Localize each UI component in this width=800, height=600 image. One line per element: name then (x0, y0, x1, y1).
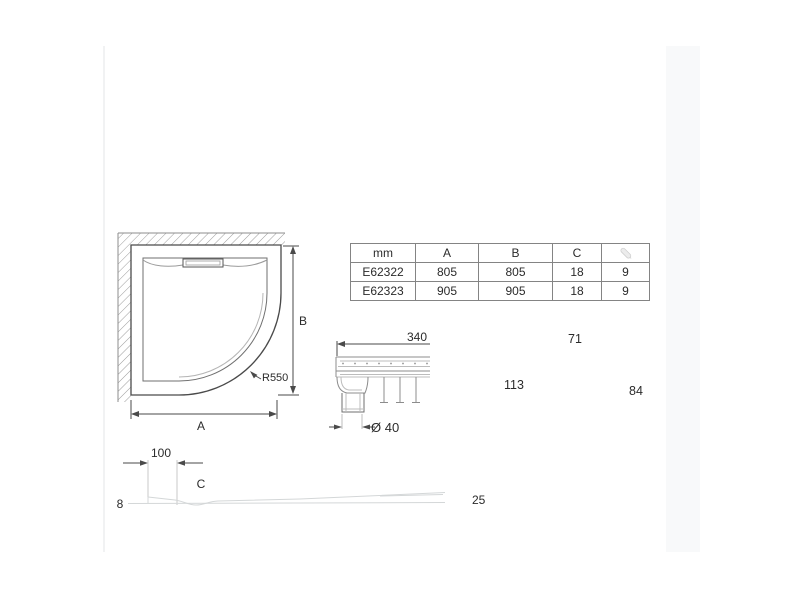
c-cell: 18 (553, 263, 602, 282)
wall-hatch-top (118, 233, 285, 245)
dimension-drain-diameter (329, 414, 375, 430)
model-cell: E62322 (351, 263, 416, 282)
c-cell: 18 (553, 282, 602, 301)
col-header-b: B (479, 244, 553, 263)
dim-label-340: 340 (407, 330, 427, 344)
dim-label-drain-diameter: Ø 40 (371, 420, 399, 435)
spec-table-row: E62322 805 805 18 9 (351, 263, 650, 282)
spec-table-row: E62323 905 905 18 9 (351, 282, 650, 301)
spec-table-header-row: mm A B C (351, 244, 650, 263)
tray-section-layers (336, 357, 430, 377)
dim-label-100: 100 (151, 446, 171, 460)
radius-callout (250, 371, 261, 379)
dim-label-c: C (197, 477, 206, 491)
dim-label-25: 25 (472, 493, 486, 507)
product-dimension-sheet: B A R550 34 (0, 0, 800, 600)
dim-label-r550: R550 (262, 372, 288, 384)
a-cell: 805 (416, 263, 479, 282)
drain-cover (183, 259, 223, 267)
col-header-c: C (553, 244, 602, 263)
drain-section-drawing: 340 (329, 330, 643, 435)
dim-label-a: A (197, 419, 205, 433)
dim-label-b: B (299, 314, 307, 328)
dim-label-71: 71 (568, 332, 582, 346)
support-legs (380, 377, 420, 403)
top-view-drawing: B A R550 (118, 233, 307, 433)
col-header-mm: mm (351, 244, 416, 263)
col-header-weight (602, 244, 650, 263)
weight-icon (617, 245, 635, 261)
weight-cell: 9 (602, 282, 650, 301)
tray-profile-lines (128, 493, 445, 506)
wall-hatch-left (118, 245, 131, 402)
col-header-a: A (416, 244, 479, 263)
a-cell: 905 (416, 282, 479, 301)
spec-table: mm A B C E62322 805 805 18 9 E62323 905 (350, 243, 650, 301)
profile-drawing: 100 C 8 25 (117, 446, 486, 511)
dim-label-84: 84 (629, 384, 643, 398)
model-cell: E62323 (351, 282, 416, 301)
weight-cell: 9 (602, 263, 650, 282)
drain-trap (337, 377, 368, 412)
b-cell: 905 (479, 282, 553, 301)
dim-label-8: 8 (117, 497, 124, 511)
dim-label-113: 113 (504, 378, 524, 392)
b-cell: 805 (479, 263, 553, 282)
dimension-a (131, 400, 277, 419)
